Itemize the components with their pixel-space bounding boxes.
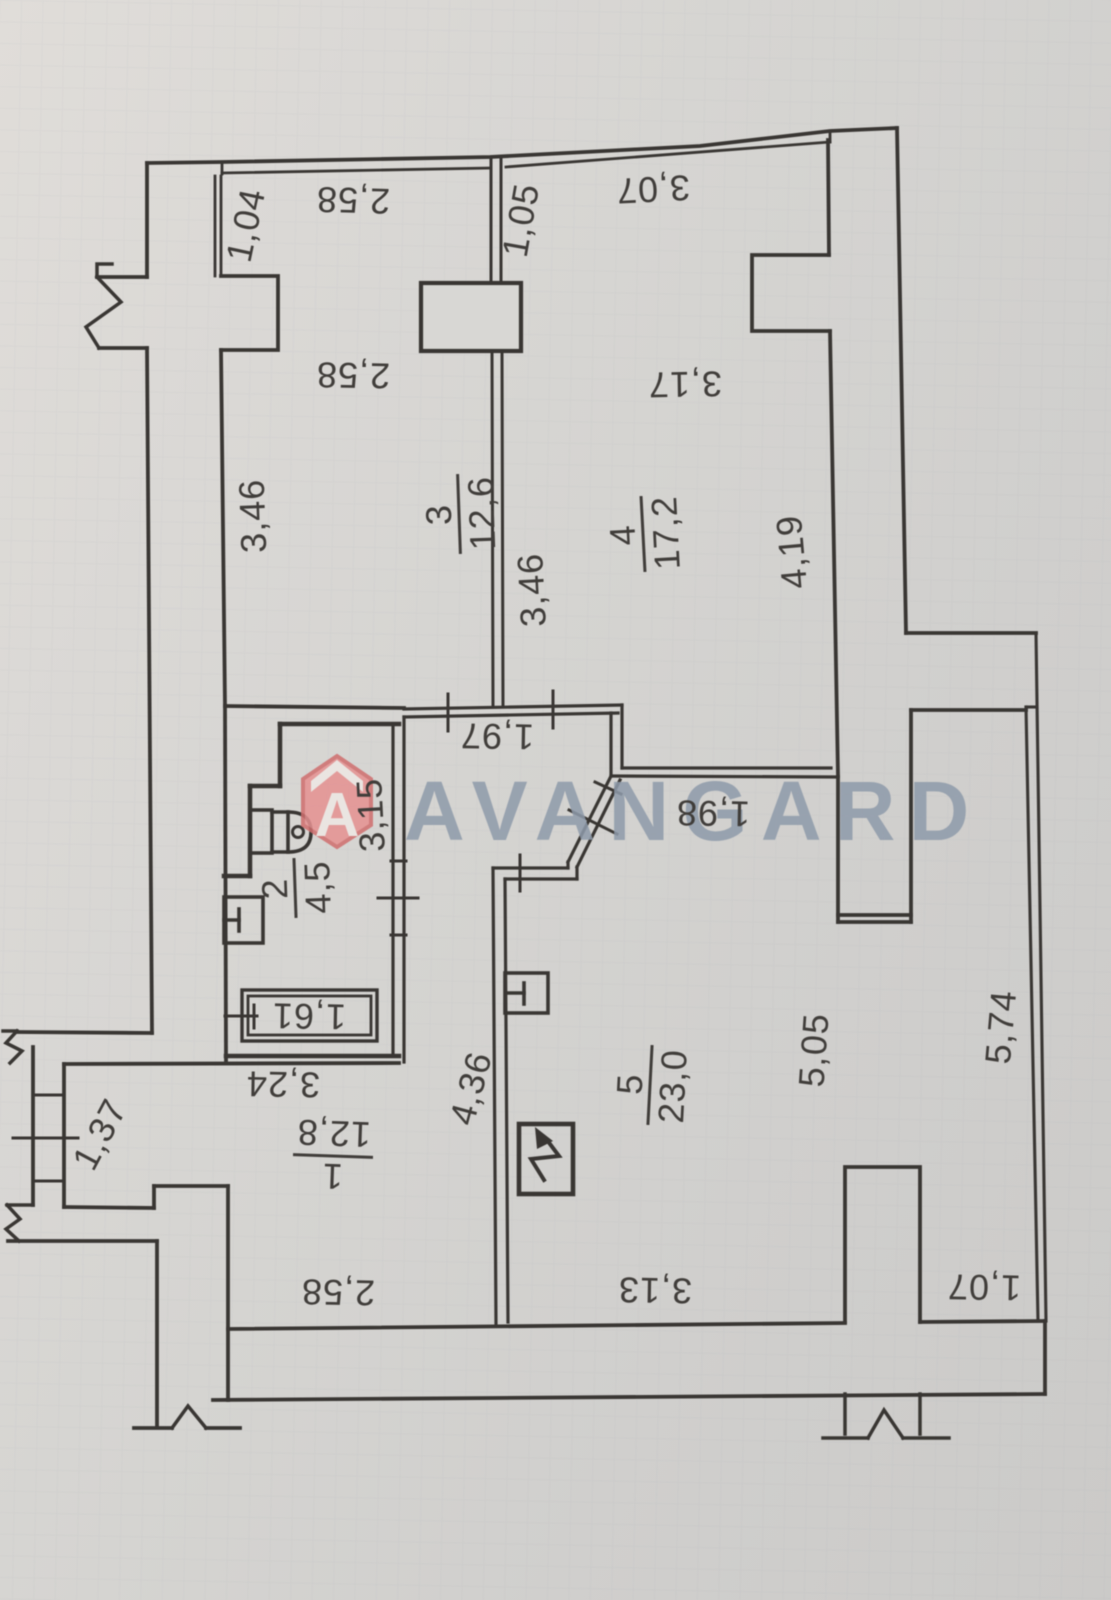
svg-text:4,19: 4,19: [768, 513, 815, 590]
svg-text:5,74: 5,74: [977, 988, 1024, 1065]
svg-text:3,46: 3,46: [509, 552, 554, 628]
svg-text:3,07: 3,07: [615, 167, 691, 212]
svg-text:2: 2: [254, 877, 296, 899]
svg-text:23,0: 23,0: [650, 1048, 695, 1124]
svg-text:3: 3: [418, 503, 460, 525]
svg-text:1: 1: [321, 1156, 343, 1198]
svg-text:1,97: 1,97: [460, 715, 535, 757]
svg-text:1,61: 1,61: [272, 995, 347, 1037]
svg-text:1,98: 1,98: [676, 792, 751, 834]
svg-text:17,2: 17,2: [643, 495, 688, 571]
svg-text:2,58: 2,58: [316, 354, 391, 396]
svg-text:3,13: 3,13: [618, 1269, 693, 1311]
svg-text:5,05: 5,05: [790, 1012, 836, 1089]
svg-text:1,07: 1,07: [947, 1266, 1022, 1308]
svg-text:3,15: 3,15: [348, 777, 393, 853]
svg-text:3,24: 3,24: [246, 1063, 321, 1105]
svg-text:2,58: 2,58: [301, 1271, 376, 1313]
svg-text:5: 5: [609, 1072, 651, 1095]
svg-text:3,17: 3,17: [648, 363, 723, 405]
svg-text:12,6: 12,6: [460, 475, 504, 550]
svg-text:4,5: 4,5: [296, 860, 339, 914]
svg-text:2,58: 2,58: [315, 179, 390, 222]
svg-text:4: 4: [602, 523, 644, 546]
svg-text:12,8: 12,8: [296, 1112, 371, 1156]
svg-text:3,46: 3,46: [231, 478, 275, 553]
